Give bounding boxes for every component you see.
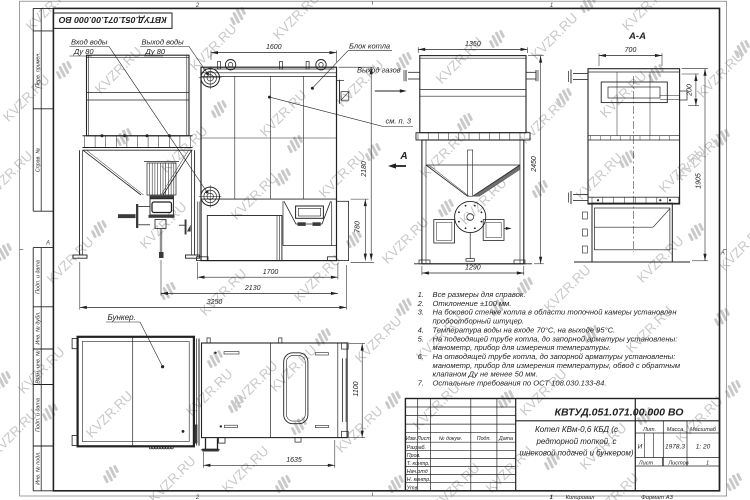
svg-text:Пров.: Пров.	[407, 453, 421, 459]
svg-text:1.: 1.	[418, 290, 424, 299]
svg-text:3250: 3250	[207, 299, 223, 306]
svg-text:А: А	[45, 241, 50, 247]
svg-text:2180: 2180	[361, 161, 368, 178]
svg-text:Инв. № подл.: Инв. № подл.	[36, 451, 42, 484]
svg-text:Ду 80: Ду 80	[73, 47, 94, 56]
svg-text:Дата: Дата	[498, 436, 513, 442]
svg-text:1700: 1700	[263, 269, 279, 276]
svg-text:Отклонение ±100 мм.: Отклонение ±100 мм.	[433, 299, 512, 308]
svg-text:А-А: А-А	[628, 31, 646, 42]
svg-text:Справ. №: Справ. №	[36, 148, 42, 173]
svg-text:Температура воды на входе 70°С: Температура воды на входе 70°С, на выход…	[433, 325, 616, 334]
svg-text:КВТУД.051.071.00.000 ВО: КВТУД.051.071.00.000 ВО	[555, 407, 684, 419]
svg-text:Листов: Листов	[667, 460, 688, 466]
svg-text:1: 20: 1: 20	[696, 444, 711, 451]
svg-text:2450: 2450	[531, 156, 538, 173]
svg-text:3.: 3.	[418, 308, 424, 317]
svg-text:На боковой стенке котла в обла: На боковой стенке котла в области топочн…	[433, 308, 678, 317]
svg-text:Вход воды: Вход воды	[71, 38, 108, 47]
svg-text:Выход газов: Выход газов	[357, 66, 401, 75]
svg-text:А: А	[720, 251, 725, 257]
svg-text:Ду 80: Ду 80	[145, 47, 166, 56]
svg-text:7.: 7.	[418, 379, 424, 388]
svg-text:1: 1	[706, 460, 709, 466]
svg-text:Бункер.: Бункер.	[108, 313, 136, 322]
svg-text:шнековой подачей и бункером): шнековой подачей и бункером)	[520, 448, 634, 458]
svg-text:6.: 6.	[418, 352, 424, 361]
svg-text:1600: 1600	[266, 44, 282, 51]
svg-text:Масштаб: Масштаб	[690, 427, 717, 433]
svg-text:Изм.: Изм.	[406, 436, 417, 442]
svg-text:1978,3: 1978,3	[665, 444, 685, 451]
svg-text:2130: 2130	[244, 285, 261, 292]
svg-text:Масса: Масса	[667, 427, 684, 433]
svg-text:1350: 1350	[465, 41, 481, 48]
svg-text:Подп. и дата: Подп. и дата	[36, 398, 42, 432]
svg-text:клапаном Ду не менее 50 мм.: клапаном Ду не менее 50 мм.	[433, 370, 538, 379]
svg-text:Копировал: Копировал	[566, 495, 596, 500]
svg-text:Остальные требования по ОСТ 10: Остальные требования по ОСТ 108.030.133-…	[433, 379, 607, 388]
svg-text:см. п. 3: см. п. 3	[386, 117, 412, 126]
svg-text:Перв. примен.: Перв. примен.	[36, 52, 42, 88]
svg-text:Инв. № дубл.: Инв. № дубл.	[36, 311, 42, 344]
svg-text:Блок котла: Блок котла	[349, 42, 390, 51]
svg-text:Нач.отд: Нач.отд	[407, 469, 428, 475]
svg-text:1905: 1905	[696, 173, 703, 189]
svg-text:780: 780	[354, 221, 361, 233]
svg-text:манометр, прибор для измерения: манометр, прибор для измерения температу…	[433, 361, 681, 370]
svg-text:Выход воды: Выход воды	[142, 38, 185, 47]
svg-text:редторной топкой, с: редторной топкой, с	[536, 436, 618, 446]
svg-text:Утв.: Утв.	[407, 485, 419, 491]
svg-text:2.: 2.	[417, 299, 424, 308]
svg-text:200: 200	[687, 84, 694, 97]
svg-text:На подводящей трубе котла, до: На подводящей трубе котла, до запорной а…	[433, 334, 678, 343]
svg-text:2: 2	[195, 495, 200, 500]
svg-text:Разраб.: Разраб.	[407, 445, 426, 451]
svg-text:Взам. инв. №: Взам. инв. №	[36, 350, 42, 384]
svg-text:пробоотборный штуцер.: пробоотборный штуцер.	[433, 317, 525, 326]
svg-text:Котел КВм-0,6 КБД (с: Котел КВм-0,6 КБД (с	[535, 424, 619, 434]
svg-text:№ докум.: № докум.	[439, 436, 462, 442]
svg-text:Лист: Лист	[638, 460, 654, 466]
svg-text:1290: 1290	[465, 265, 481, 272]
svg-text:Т. контр.: Т. контр.	[407, 461, 430, 467]
svg-text:На отводящей трубе котла, до з: На отводящей трубе котла, до запорной ар…	[433, 352, 676, 361]
svg-text:Н. контр.: Н. контр.	[407, 477, 431, 483]
svg-text:Подп.: Подп.	[477, 436, 491, 442]
svg-text:Формат А3: Формат А3	[641, 495, 673, 500]
svg-text:1635: 1635	[286, 457, 302, 464]
svg-text:4.: 4.	[418, 325, 424, 334]
svg-text:Подп. и дата: Подп. и дата	[36, 260, 42, 294]
svg-text:манометр, прибор для измерения: манометр, прибор для измерения температу…	[433, 343, 611, 352]
svg-text:КВТУД.051.071.00.000 ВО: КВТУД.051.071.00.000 ВО	[58, 15, 167, 24]
svg-text:Лист: Лист	[416, 436, 431, 442]
svg-text:Лит.: Лит.	[642, 427, 656, 433]
svg-text:Все размеры для справок.: Все размеры для справок.	[433, 290, 526, 299]
svg-text:1: 1	[549, 495, 552, 500]
svg-text:5.: 5.	[418, 334, 424, 343]
svg-text:И: И	[638, 444, 643, 451]
svg-text:А: А	[399, 151, 407, 162]
svg-text:700: 700	[625, 47, 637, 54]
svg-text:1100: 1100	[353, 381, 360, 396]
